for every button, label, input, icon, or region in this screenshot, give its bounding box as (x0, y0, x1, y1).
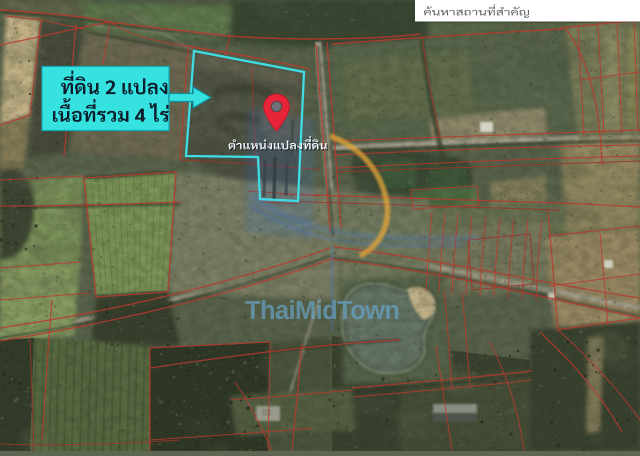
svg-text:ThaiMidTown: ThaiMidTown (245, 297, 400, 325)
